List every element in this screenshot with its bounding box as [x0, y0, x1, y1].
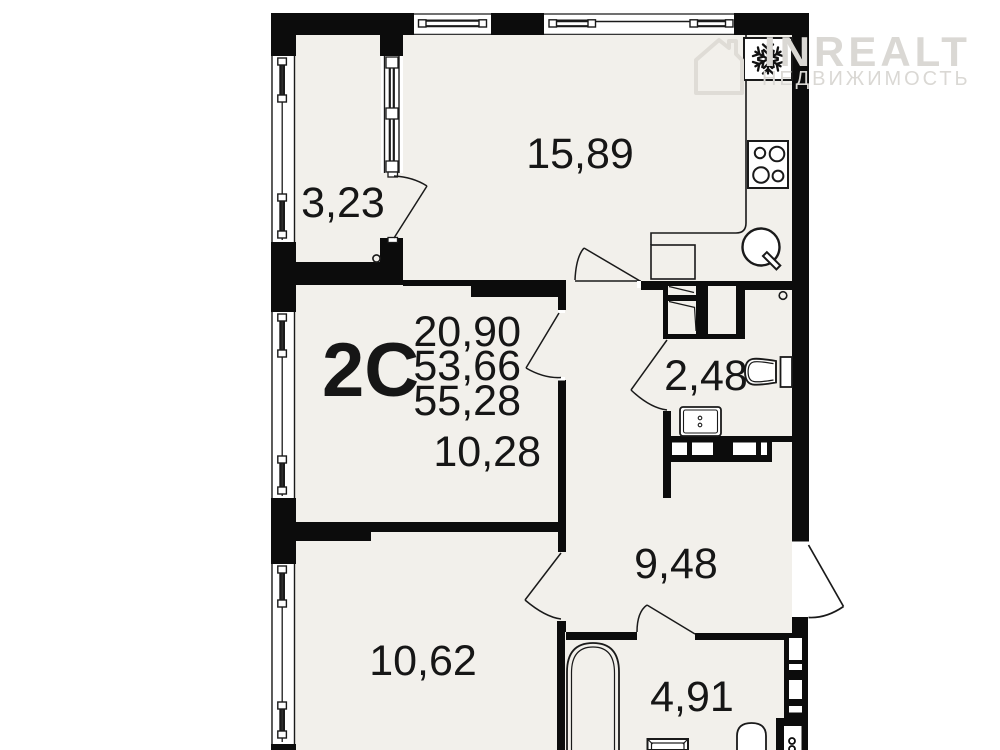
svg-text:2,48: 2,48: [664, 352, 748, 400]
svg-text:НЕДВИЖИМОСТЬ: НЕДВИЖИМОСТЬ: [762, 68, 971, 90]
svg-text:10,28: 10,28: [433, 428, 541, 476]
svg-text:9,48: 9,48: [634, 540, 718, 588]
svg-text:10,62: 10,62: [369, 637, 477, 685]
svg-text:3,23: 3,23: [301, 179, 385, 227]
svg-text:15,89: 15,89: [526, 130, 634, 178]
svg-text:4,91: 4,91: [650, 673, 734, 721]
svg-text:55,28: 55,28: [413, 377, 521, 425]
svg-text:2С: 2С: [322, 328, 419, 413]
